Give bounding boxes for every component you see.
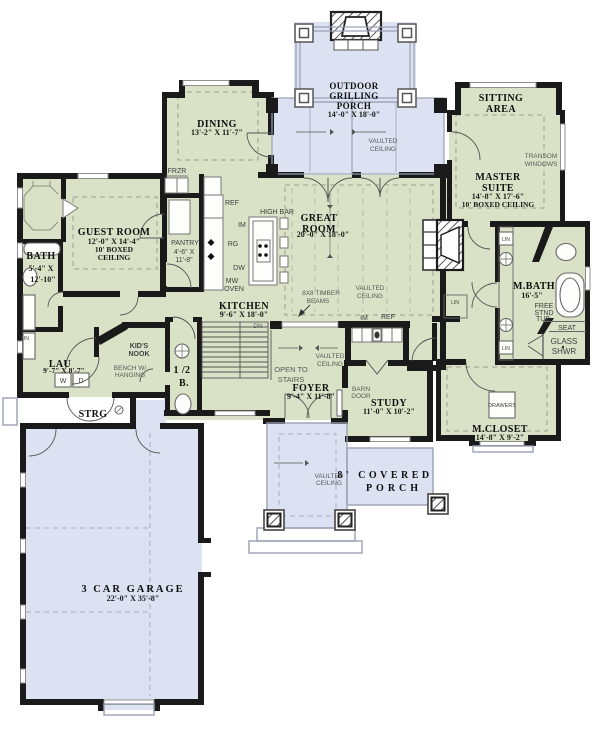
svg-text:REF: REF	[225, 200, 239, 207]
svg-text:BENCH W/: BENCH W/	[114, 365, 147, 372]
svg-text:SHWR: SHWR	[552, 347, 577, 356]
svg-text:WINDOWS: WINDOWS	[525, 161, 559, 168]
svg-text:HIGH BAR: HIGH BAR	[260, 209, 294, 216]
svg-text:HANGING: HANGING	[115, 372, 145, 379]
svg-text:VAULTED: VAULTED	[314, 473, 343, 480]
svg-text:4'-6" X: 4'-6" X	[174, 249, 195, 256]
svg-text:IM: IM	[360, 315, 368, 322]
svg-text:VAULTED: VAULTED	[355, 285, 384, 292]
svg-text:CEILING: CEILING	[370, 146, 396, 153]
svg-text:16'-5": 16'-5"	[521, 291, 542, 300]
svg-text:8' COVERED: 8' COVERED	[337, 470, 432, 481]
svg-text:MASTER: MASTER	[475, 172, 521, 183]
svg-text:12'-10": 12'-10"	[30, 275, 55, 284]
svg-text:GREAT: GREAT	[301, 213, 338, 224]
svg-text:GLASS: GLASS	[551, 337, 578, 346]
svg-text:5'-4" X: 5'-4" X	[28, 264, 53, 273]
svg-text:STRG: STRG	[79, 409, 108, 420]
svg-text:14'-0" X 18'-0": 14'-0" X 18'-0"	[328, 110, 380, 119]
svg-text:CEILING: CEILING	[357, 293, 383, 300]
svg-text:BEAMS: BEAMS	[307, 298, 330, 305]
svg-text:SEAT: SEAT	[558, 325, 576, 332]
svg-text:FREE: FREE	[535, 303, 554, 310]
svg-text:OVEN: OVEN	[224, 286, 244, 293]
svg-text:DN: DN	[253, 323, 263, 330]
svg-text:B.: B.	[179, 378, 189, 389]
svg-text:VAULTED: VAULTED	[315, 353, 344, 360]
svg-text:IM: IM	[238, 222, 246, 229]
svg-text:DW: DW	[233, 265, 245, 272]
svg-text:CEILING: CEILING	[316, 480, 342, 487]
svg-text:14'-8" X 9'-2": 14'-8" X 9'-2"	[476, 433, 524, 442]
svg-text:TRANSOM: TRANSOM	[525, 153, 558, 160]
svg-text:13'-2" X 11'-7": 13'-2" X 11'-7"	[191, 128, 243, 137]
svg-text:DOOR: DOOR	[351, 393, 371, 400]
svg-text:DRAWERS: DRAWERS	[488, 403, 516, 409]
svg-text:LIN: LIN	[502, 237, 510, 243]
svg-text:PORCH: PORCH	[366, 483, 422, 494]
svg-text:11'-0" X 10'-2": 11'-0" X 10'-2"	[363, 407, 415, 416]
svg-text:8X8 TIMBER: 8X8 TIMBER	[302, 290, 340, 297]
svg-text:FRZR: FRZR	[168, 168, 187, 175]
svg-text:LIN: LIN	[502, 346, 510, 352]
svg-text:NOOK: NOOK	[129, 351, 150, 358]
svg-text:OUTDOOR: OUTDOOR	[329, 81, 378, 91]
svg-text:RG: RG	[228, 241, 239, 248]
svg-text:BATH: BATH	[26, 251, 55, 262]
svg-text:LIN: LIN	[21, 336, 29, 342]
svg-text:CEILING: CEILING	[317, 361, 343, 368]
svg-text:11'-8": 11'-8"	[175, 257, 193, 264]
svg-text:TUB: TUB	[536, 316, 550, 323]
svg-text:10' BOXED CEILING: 10' BOXED CEILING	[462, 200, 535, 209]
svg-text:KID'S: KID'S	[130, 343, 149, 350]
svg-text:9'-7" X 8'-7": 9'-7" X 8'-7"	[43, 366, 85, 375]
svg-text:1 /2: 1 /2	[174, 365, 191, 376]
svg-text:GRILLING: GRILLING	[329, 91, 378, 101]
svg-text:AREA: AREA	[486, 104, 516, 115]
svg-text:MW: MW	[226, 278, 239, 285]
svg-text:CEILING: CEILING	[98, 253, 131, 262]
svg-text:OPEN TO: OPEN TO	[274, 365, 308, 374]
svg-text:20'-0" X 18'-0": 20'-0" X 18'-0"	[297, 230, 349, 239]
svg-text:PANTRY: PANTRY	[171, 240, 199, 247]
svg-text:D: D	[78, 378, 83, 385]
svg-text:BARN: BARN	[352, 386, 370, 393]
svg-text:9'-4" X 11'-8": 9'-4" X 11'-8"	[287, 392, 335, 401]
svg-text:VAULTED: VAULTED	[368, 138, 397, 145]
svg-text:9'-6" X 18'-0": 9'-6" X 18'-0"	[220, 310, 268, 319]
svg-text:REF: REF	[381, 314, 395, 321]
svg-text:LIN: LIN	[451, 300, 459, 306]
svg-text:SITTING: SITTING	[479, 93, 524, 104]
svg-text:22'-0" X 35'-8": 22'-0" X 35'-8"	[107, 594, 159, 603]
svg-text:W: W	[60, 378, 67, 385]
